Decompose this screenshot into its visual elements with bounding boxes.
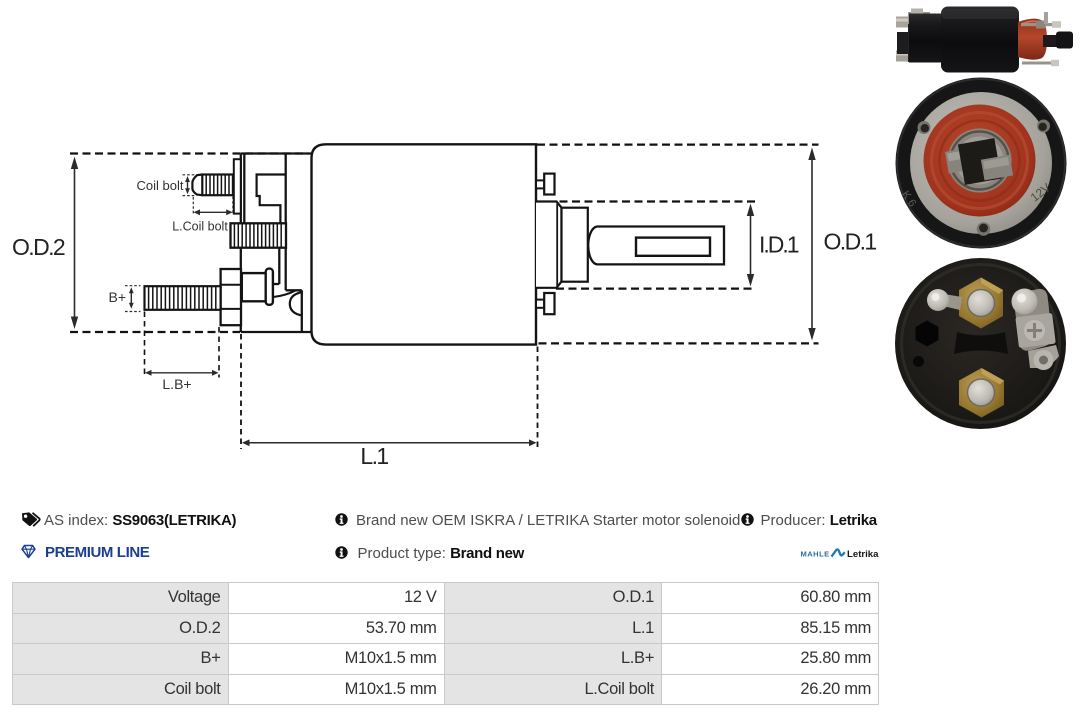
svg-text:I.D.1: I.D.1 xyxy=(759,232,799,258)
svg-text:Coil bolt: Coil bolt xyxy=(137,178,184,193)
svg-text:O.D.2: O.D.2 xyxy=(12,234,65,260)
svg-text:Letrika: Letrika xyxy=(847,549,879,559)
svg-text:L.Coil bolt: L.Coil bolt xyxy=(172,220,228,234)
svg-text:O.D.1: O.D.1 xyxy=(824,229,877,255)
svg-text:MAHLE: MAHLE xyxy=(800,549,829,558)
svg-text:L.1: L.1 xyxy=(360,443,388,469)
svg-text:L.B+: L.B+ xyxy=(162,376,191,392)
svg-text:B+: B+ xyxy=(108,289,126,305)
